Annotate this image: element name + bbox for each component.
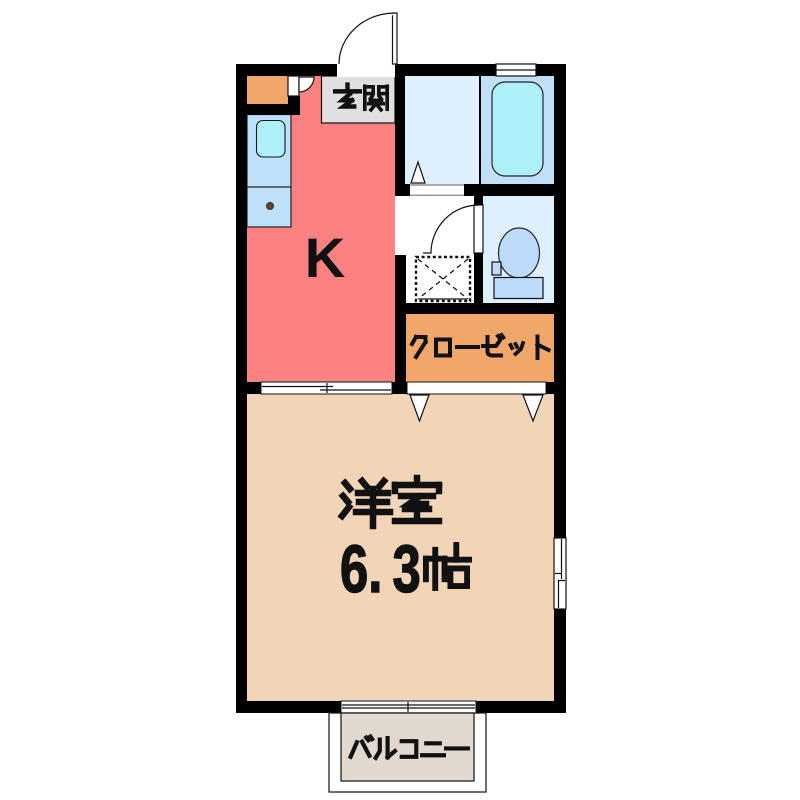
svg-text:K: K [305,226,345,289]
svg-text:3: 3 [392,531,420,606]
svg-text:6.: 6. [340,531,382,606]
